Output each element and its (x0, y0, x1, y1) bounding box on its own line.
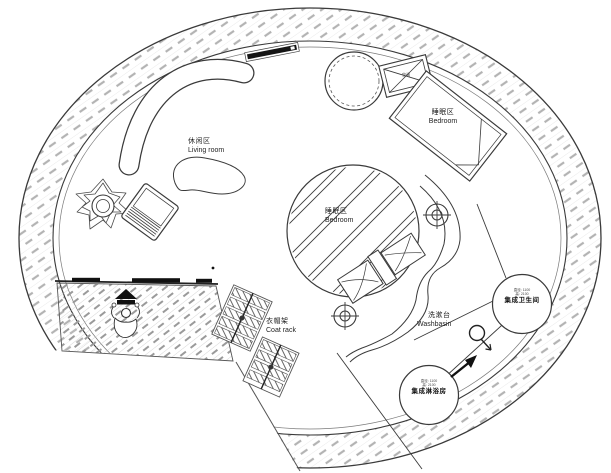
crosshair-marker (331, 302, 359, 330)
door-leaf (132, 278, 180, 282)
bathroom-pod-label: 直径: 1100 高: 2100 集成卫生间 (505, 288, 540, 306)
bedroom-center-label: 睡眠区 Bedroom (325, 207, 353, 225)
floor-dot (212, 267, 215, 270)
armchair (121, 183, 180, 242)
door-leaf (72, 278, 100, 282)
kidney-table (173, 157, 245, 194)
entrance-corridor (55, 278, 233, 361)
bedroom-upper-label: 睡眠区 Bedroom (429, 108, 457, 126)
door-leaf (196, 279, 212, 283)
potted-plant (76, 179, 130, 229)
round-table (325, 52, 383, 110)
washbasin-label: 洗漱台 Washbasin (417, 311, 451, 329)
floor-plan: 休闲区 Living room 睡眠区 Bedroom 睡眠区 Bedroom … (0, 0, 611, 473)
floor-plan-drawing (0, 0, 611, 473)
ac-unit-label: 空调 (402, 72, 410, 77)
living-room-label: 休闲区 Living room (188, 137, 224, 155)
flow-arrow (451, 355, 477, 377)
shower-pod-label: 直径: 1100 高: 2100 集成淋浴房 (412, 379, 447, 397)
coat-rack-label: 衣帽架 Coat rack (266, 317, 296, 335)
